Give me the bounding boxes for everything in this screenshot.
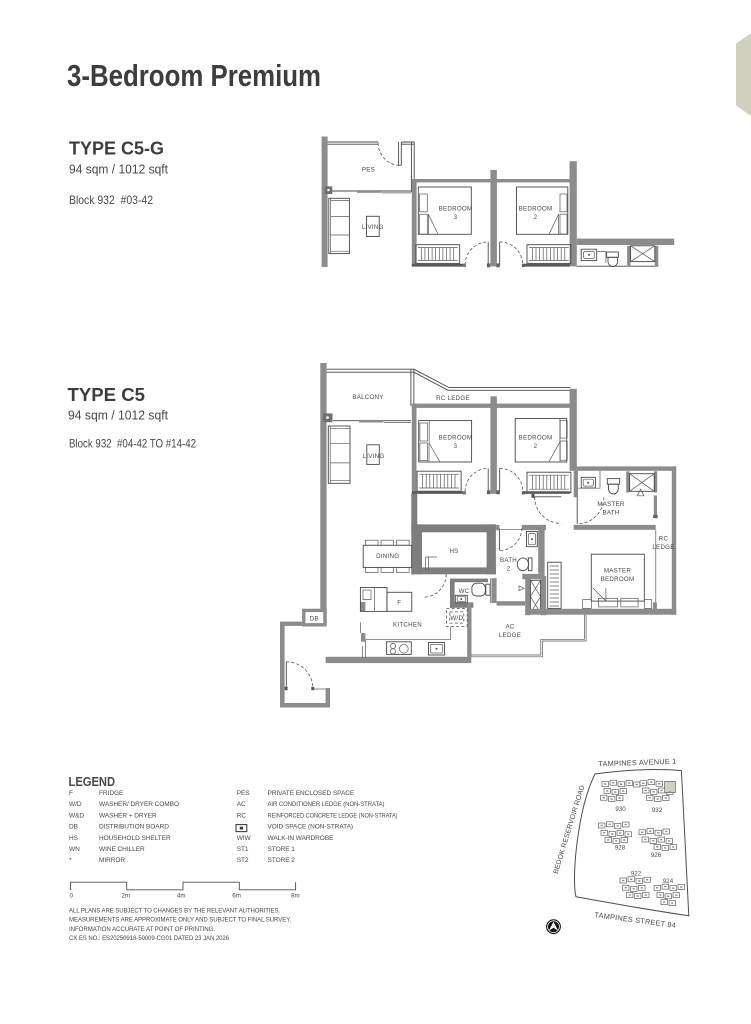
svg-text:STORE 2: STORE 2 [268,857,296,864]
svg-text:F: F [397,600,401,607]
svg-text:2: 2 [507,565,511,572]
svg-text:LIVING: LIVING [363,453,385,460]
svg-text:6m: 6m [232,893,241,900]
svg-text:HS: HS [449,548,458,555]
svg-text:PES: PES [237,790,251,797]
svg-text:94 sqm / 1012 sqft: 94 sqm / 1012 sqft [69,162,168,177]
svg-text:BATH: BATH [602,509,619,516]
svg-text:LEDGE: LEDGE [652,544,674,551]
svg-text:BEDROOM: BEDROOM [439,435,473,442]
svg-text:0: 0 [69,893,73,900]
svg-text:WINE CHILLER: WINE CHILLER [99,846,145,853]
svg-text:4m: 4m [177,893,186,900]
svg-text:BEDROOM: BEDROOM [439,206,473,213]
svg-text:MEASUREMENTS ARE APPROXIMATE O: MEASUREMENTS ARE APPROXIMATE ONLY AND SU… [69,917,291,924]
svg-text:Block 932 #04-42 TO #14-42: Block 932 #04-42 TO #14-42 [69,436,196,450]
svg-text:3: 3 [454,214,458,221]
svg-text:928: 928 [615,844,626,851]
svg-text:STORE 1: STORE 1 [268,846,296,853]
svg-text:TAMPINES STREET 94: TAMPINES STREET 94 [594,910,677,930]
svg-text:926: 926 [651,852,662,859]
svg-text:2: 2 [534,214,538,221]
svg-text:LEGEND: LEGEND [69,774,116,789]
svg-text:W/D: W/D [450,615,463,622]
svg-text:924: 924 [663,878,674,885]
svg-text:BEDROOM: BEDROOM [601,576,635,583]
svg-text:DB: DB [69,824,78,831]
svg-text:BATH: BATH [500,557,517,564]
svg-text:932: 932 [652,807,663,814]
svg-text:TYPE C5-G: TYPE C5-G [69,139,164,159]
svg-text:WALK-IN WARDROBE: WALK-IN WARDROBE [268,835,335,842]
svg-text:F: F [69,790,73,797]
svg-text:TAMPINES AVENUE 1: TAMPINES AVENUE 1 [598,757,676,769]
svg-text:RC: RC [659,536,669,543]
svg-text:PES: PES [362,167,375,174]
svg-text:KITCHEN: KITCHEN [393,621,422,628]
svg-text:VOID SPACE (NON-STRATA): VOID SPACE (NON-STRATA) [268,824,354,831]
svg-text:BEDROOM: BEDROOM [519,206,553,213]
svg-text:2: 2 [534,443,538,450]
svg-text:LIVING: LIVING [362,224,384,231]
svg-text:CX ES NO.: ES20250918-50009-CG: CX ES NO.: ES20250918-50009-CG01 DATED 2… [69,935,229,942]
svg-text:WN: WN [69,846,80,853]
svg-text:MIRROR: MIRROR [99,857,125,864]
svg-text:LEDGE: LEDGE [499,632,521,639]
svg-text:WIW: WIW [237,835,252,842]
svg-text:AC: AC [505,624,514,631]
svg-text:WC: WC [459,588,470,595]
svg-text:FRIDGE: FRIDGE [99,790,124,797]
svg-text:BEDROOM: BEDROOM [519,435,553,442]
svg-text:INFORMATION ACCURATE AT POINT: INFORMATION ACCURATE AT POINT OF PRINTIN… [69,926,215,933]
svg-text:W/D: W/D [69,801,82,808]
svg-text:BALCONY: BALCONY [352,394,383,401]
svg-text:PRIVATE ENCLOSED SPACE: PRIVATE ENCLOSED SPACE [268,790,355,797]
svg-text:930: 930 [615,806,626,813]
svg-text:DISTRIBUTION BOARD: DISTRIBUTION BOARD [99,824,169,831]
svg-text:MASTER: MASTER [597,501,625,508]
svg-text:RC: RC [237,812,247,819]
svg-text:Block 932 #03-42: Block 932 #03-42 [69,193,153,207]
svg-text:BEDOK RESERVOIR ROAD: BEDOK RESERVOIR ROAD [553,784,587,874]
svg-text:2m: 2m [121,893,130,900]
svg-text:W&D: W&D [69,812,84,819]
svg-text:ST1: ST1 [237,846,249,853]
svg-text:ALL PLANS ARE SUBJECT TO CHANG: ALL PLANS ARE SUBJECT TO CHANGES BY THE … [69,907,280,914]
svg-text:DINING: DINING [376,553,399,560]
svg-text:AC: AC [237,801,246,808]
svg-text:3-Bedroom Premium: 3-Bedroom Premium [67,59,321,93]
svg-text:DB: DB [310,616,319,623]
svg-text:8m: 8m [291,893,300,900]
svg-text:HS: HS [69,835,79,842]
svg-text:3: 3 [454,443,458,450]
svg-text:REINFORCED CONCRETE LEDGE (NON: REINFORCED CONCRETE LEDGE (NON-STRATA) [268,812,398,819]
svg-text:MASTER: MASTER [604,568,632,575]
svg-text:RC LEDGE: RC LEDGE [436,395,470,402]
svg-text:94 sqm / 1012 sqft: 94 sqm / 1012 sqft [68,408,168,423]
svg-text:WASHER + DRYER: WASHER + DRYER [99,812,157,819]
svg-text:ST2: ST2 [237,857,249,864]
svg-text:TYPE C5: TYPE C5 [68,385,146,405]
svg-text:922: 922 [631,870,642,877]
svg-text:*: * [69,857,72,864]
svg-text:AIR CONDITIONER LEDGE (NON-STR: AIR CONDITIONER LEDGE (NON-STRATA) [268,801,385,808]
svg-text:HOUSEHOLD SHELTER: HOUSEHOLD SHELTER [99,835,171,842]
svg-text:WASHER/ DRYER COMBO: WASHER/ DRYER COMBO [99,801,179,808]
